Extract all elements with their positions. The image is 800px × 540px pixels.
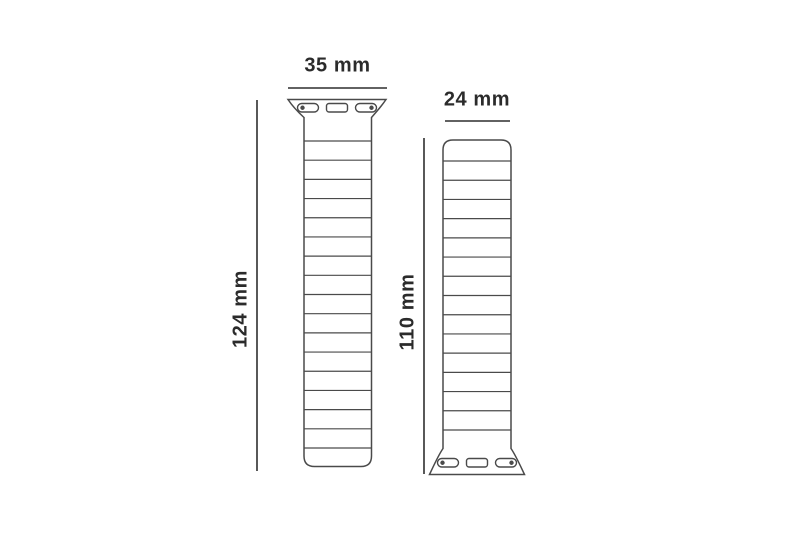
band-long-outline [288,100,386,467]
band-long-length-label: 124 mm [230,270,253,348]
lug-slot-middle [327,104,348,113]
lug-slot-middle [467,459,488,468]
band-short-drawing [430,140,525,475]
lug-slot-right-pin [369,106,373,110]
band-long-lug-slots [298,104,377,113]
band-long-drawing [288,100,386,467]
diagram-canvas: 35 mm 124 mm 24 mm 110 mm [0,0,800,540]
band-short-lug-slots [438,459,517,468]
band-long-width-label: 35 mm [304,55,370,78]
band-drawing [0,0,800,540]
lug-slot-left-pin [300,106,304,110]
band-short-outline [430,140,525,475]
band-short-length-label: 110 mm [397,274,420,351]
lug-slot-left-pin [440,461,444,465]
band-short-width-label: 24 mm [444,89,510,112]
lug-slot-right-pin [509,461,513,465]
